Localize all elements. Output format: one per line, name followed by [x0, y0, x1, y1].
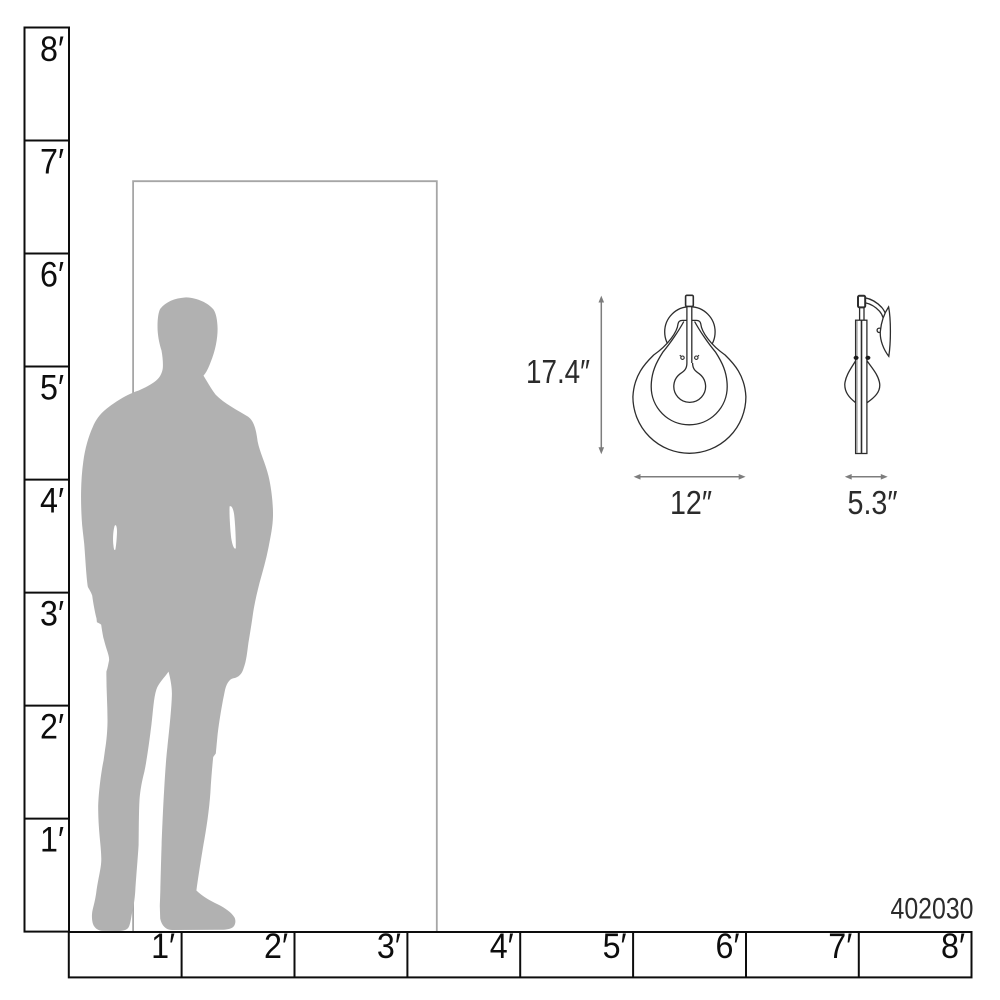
svg-text:17.4″: 17.4″	[526, 353, 590, 390]
svg-text:3′: 3′	[40, 595, 64, 634]
svg-text:402030: 402030	[891, 893, 974, 926]
svg-text:7′: 7′	[40, 143, 64, 182]
svg-text:3′: 3′	[377, 927, 401, 966]
svg-text:12″: 12″	[670, 484, 712, 521]
svg-text:8′: 8′	[40, 30, 64, 69]
svg-text:4′: 4′	[40, 482, 64, 521]
svg-text:6′: 6′	[716, 927, 740, 966]
svg-text:2′: 2′	[40, 708, 64, 747]
svg-text:1′: 1′	[40, 821, 64, 860]
svg-text:6′: 6′	[40, 256, 64, 295]
svg-text:4′: 4′	[490, 927, 514, 966]
svg-text:8′: 8′	[941, 927, 965, 966]
svg-text:7′: 7′	[828, 927, 852, 966]
svg-text:5.3″: 5.3″	[848, 484, 898, 521]
svg-text:2′: 2′	[264, 927, 288, 966]
svg-text:5′: 5′	[603, 927, 627, 966]
svg-text:5′: 5′	[40, 369, 64, 408]
svg-text:1′: 1′	[151, 927, 175, 966]
